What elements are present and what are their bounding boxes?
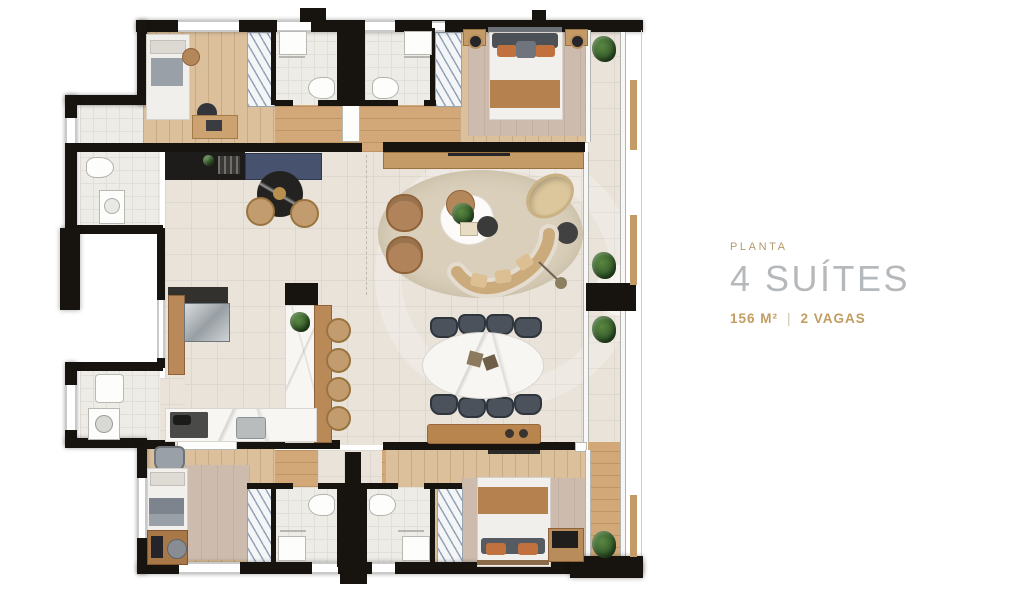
- breakfast-chair: [290, 199, 319, 228]
- fridge: [184, 303, 230, 342]
- suite3-blanket: [149, 498, 184, 514]
- plan-details: 156 M²|2 VAGAS: [730, 311, 1010, 326]
- dining-chair: [458, 397, 486, 418]
- suite3-tv: [151, 536, 163, 558]
- balcony-pillar: [586, 283, 636, 311]
- suite3-blanket: [149, 514, 184, 526]
- closet-master: [435, 32, 462, 107]
- dining-chair: [486, 397, 514, 418]
- window: [312, 562, 338, 574]
- structural-pier: [60, 228, 80, 310]
- armchair: [386, 236, 423, 274]
- kitchen-utensils: [218, 156, 240, 174]
- window: [372, 562, 395, 574]
- suite4-tv: [488, 450, 540, 454]
- island-plant: [290, 312, 310, 332]
- wall: [65, 95, 77, 235]
- sideboard-knob: [519, 429, 528, 438]
- window: [157, 300, 165, 358]
- laundry-tank: [95, 374, 124, 403]
- cooktop: [170, 412, 208, 438]
- wall: [65, 143, 362, 152]
- suite4-blanket: [478, 487, 548, 514]
- dining-chair: [430, 394, 458, 415]
- floor-plan-page: PLANTA 4 SUÍTES 156 M²|2 VAGAS: [0, 0, 1024, 609]
- elevator-shaft: [337, 20, 365, 105]
- suite1-bed-blanket: [151, 58, 183, 86]
- master-pillow-orange: [535, 45, 555, 57]
- entry-door: [342, 104, 360, 142]
- shaft-tab: [532, 10, 546, 22]
- master-blanket: [490, 80, 560, 108]
- powder-toilet: [86, 157, 114, 178]
- bar-stool: [326, 348, 351, 373]
- balcony-plant: [592, 36, 616, 62]
- sideboard-knob: [505, 429, 514, 438]
- suite1-bed-pillow: [150, 40, 186, 54]
- bath1-shower-rail: [279, 56, 305, 58]
- window: [179, 562, 240, 574]
- brise-wood: [630, 495, 637, 557]
- curved-sofa: [443, 222, 568, 300]
- bath4-sink: [402, 536, 430, 561]
- ceiling-projection: [366, 155, 367, 295]
- bath2-shower-rail: [404, 56, 430, 58]
- shaft-lower: [337, 487, 367, 567]
- suite1-side-table: [182, 48, 200, 66]
- plan-area: 156 M²: [730, 311, 778, 326]
- brise-wood: [630, 215, 637, 285]
- bath3-sink: [278, 536, 306, 561]
- plan-eyebrow: PLANTA: [730, 241, 1010, 253]
- bar-stool: [326, 406, 351, 431]
- entry-hall-floor: [362, 143, 383, 152]
- dining-chair: [514, 394, 542, 415]
- suite3-stool: [167, 539, 187, 559]
- bath1-toilet: [308, 77, 335, 99]
- window: [137, 478, 147, 538]
- bath3-toilet: [308, 494, 335, 516]
- glass-door-suite4: [585, 450, 591, 562]
- bath4-toilet: [369, 494, 396, 516]
- master-pillow-orange: [497, 45, 517, 57]
- kitchen-sink: [236, 417, 266, 439]
- plan-parking: 2 VAGAS: [801, 311, 866, 326]
- bath3-shower-rail: [280, 530, 306, 532]
- breakfast-chair: [246, 197, 275, 226]
- shaft-tab: [300, 8, 326, 22]
- plan-info: PLANTA 4 SUÍTES 156 M²|2 VAGAS: [730, 241, 1010, 326]
- closet-suite4: [437, 487, 463, 566]
- master-lamp: [468, 34, 483, 49]
- armchair: [386, 194, 423, 232]
- bath2-toilet: [372, 77, 399, 99]
- master-tv: [448, 153, 510, 156]
- balcony-plant: [592, 316, 616, 343]
- master-lamp: [570, 34, 585, 49]
- bath4-shower-rail: [398, 530, 424, 532]
- washer-door: [95, 415, 113, 433]
- brise-wood: [630, 80, 637, 150]
- breakfast-table-decor: [273, 187, 286, 200]
- bath1-sink: [279, 31, 307, 55]
- kitchen-plant: [203, 155, 214, 166]
- bath2-sink: [404, 31, 432, 55]
- wall: [271, 28, 276, 105]
- wall: [247, 483, 293, 489]
- wall: [318, 100, 398, 106]
- wall: [430, 487, 435, 567]
- shaft-stub: [345, 452, 361, 487]
- suite3-pillow: [150, 472, 185, 486]
- glass-door-master: [585, 30, 591, 142]
- suite1-laptop: [206, 120, 222, 131]
- wall: [65, 95, 147, 105]
- suite4-pillow-orange: [486, 543, 506, 555]
- wall: [65, 362, 163, 371]
- suite4-dresser-top: [552, 531, 578, 548]
- suite4-headboard: [477, 560, 549, 565]
- wall: [424, 100, 436, 106]
- dining-table: [422, 332, 544, 399]
- bar-stool: [326, 318, 351, 343]
- entry-hall-floor: [275, 103, 460, 143]
- building-edge: [641, 30, 642, 560]
- master-cushion: [516, 41, 536, 58]
- bar-stool: [326, 377, 351, 402]
- tv-wall-master: [383, 142, 585, 152]
- balcony-plant: [592, 252, 616, 279]
- plan-separator: |: [778, 311, 801, 326]
- dining-chair: [514, 317, 542, 338]
- powder-sink: [104, 198, 120, 214]
- wall: [271, 487, 276, 567]
- island-head-wall: [285, 283, 318, 306]
- balcony-plant: [592, 531, 616, 558]
- suite3-rug: [185, 465, 250, 560]
- wall: [275, 100, 293, 106]
- pantry-cabinet: [168, 295, 185, 375]
- suite4-pillow-orange: [518, 543, 538, 555]
- window: [178, 20, 239, 32]
- plan-title: 4 SUÍTES: [730, 258, 1010, 300]
- suite3-door: [177, 441, 237, 450]
- service-door: [65, 385, 77, 430]
